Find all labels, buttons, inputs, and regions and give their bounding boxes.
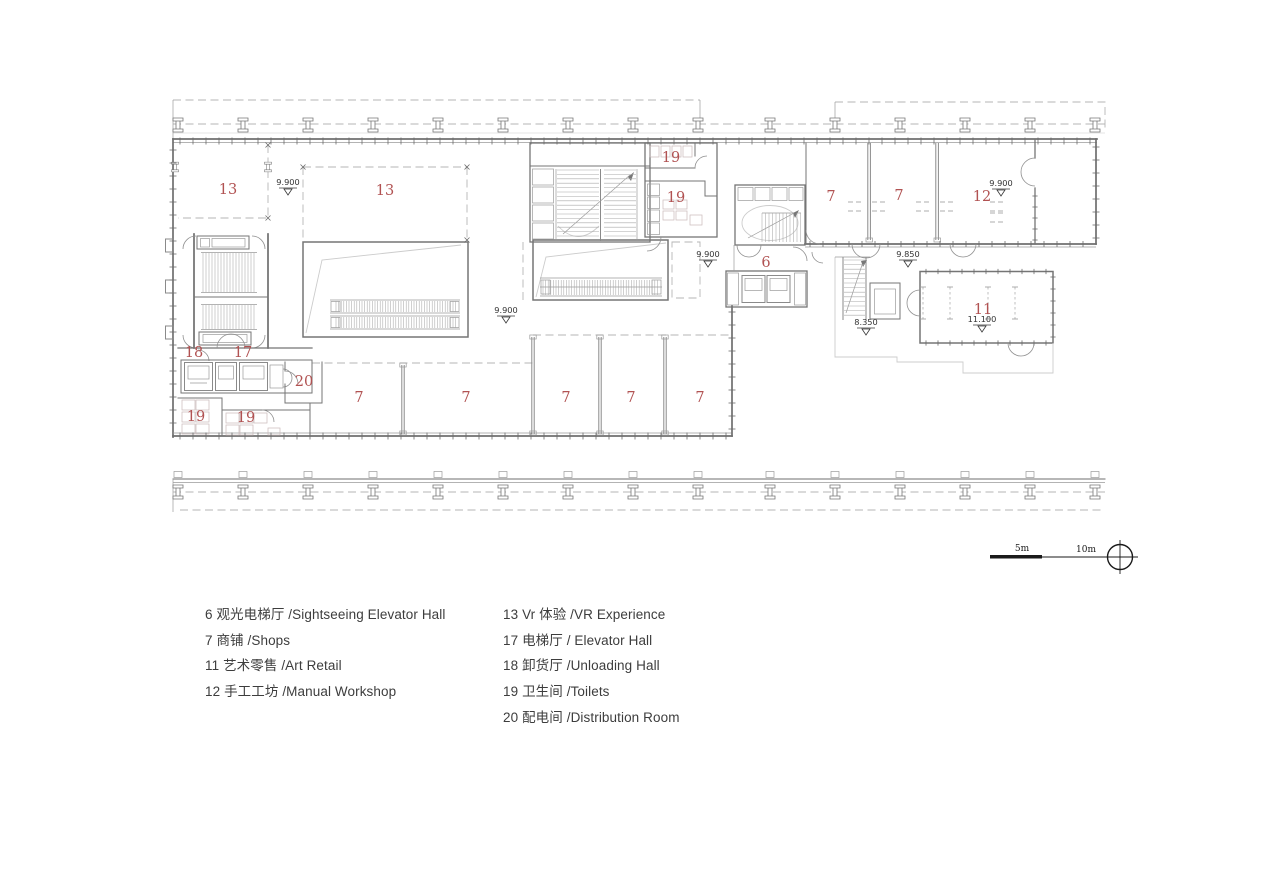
legend-item: 19 卫生间 /Toilets bbox=[503, 677, 680, 703]
room-label-6: 6 bbox=[761, 255, 770, 271]
art-retail-wing bbox=[835, 257, 1053, 373]
room-label-13: 13 bbox=[376, 183, 394, 199]
elevation-marker-label: 9.900 bbox=[494, 305, 517, 315]
room-label-7: 7 bbox=[626, 390, 635, 406]
scale-bar-5m-segment bbox=[990, 555, 1042, 559]
scale-label-5m: 5m bbox=[1015, 544, 1030, 554]
legend-item: 20 配电间 /Distribution Room bbox=[503, 703, 680, 729]
room-label-19: 19 bbox=[237, 410, 255, 426]
elevation-marker-icon bbox=[978, 326, 986, 332]
legend-item: 13 Vr 体验 /VR Experience bbox=[503, 600, 680, 626]
elevation-marker-icon bbox=[704, 261, 712, 267]
elevation-marker-label: 9.900 bbox=[989, 178, 1012, 188]
room-label-7: 7 bbox=[894, 188, 903, 204]
room-label-19: 19 bbox=[662, 150, 680, 166]
legend-item: 12 手工工坊 /Manual Workshop bbox=[205, 677, 446, 703]
room-label-20: 20 bbox=[295, 374, 313, 390]
scale-label-10m: 10m bbox=[1076, 545, 1096, 555]
legend-column-1: 6 观光电梯厅 /Sightseeing Elevator Hall 7 商铺 … bbox=[205, 600, 446, 703]
elevation-marker-label: 9.850 bbox=[896, 249, 919, 259]
oval-stair-room bbox=[735, 185, 805, 245]
floor-plan-drawing: 1313191977126111817207777719199.9009.900… bbox=[0, 0, 1280, 870]
room-label-13: 13 bbox=[219, 182, 237, 198]
legend-item: 6 观光电梯厅 /Sightseeing Elevator Hall bbox=[205, 600, 446, 626]
room-label-7: 7 bbox=[354, 390, 363, 406]
room-label-7: 7 bbox=[826, 189, 835, 205]
room-label-7: 7 bbox=[695, 390, 704, 406]
elevation-marker-label: 8.350 bbox=[854, 317, 877, 327]
elevation-marker-icon bbox=[997, 190, 1005, 196]
elevation-marker-icon bbox=[862, 329, 870, 335]
elevation-marker-icon bbox=[502, 317, 510, 323]
room-label-7: 7 bbox=[561, 390, 570, 406]
legend-item: 18 卸货厅 /Unloading Hall bbox=[503, 651, 680, 677]
legend-item: 7 商铺 /Shops bbox=[205, 626, 446, 652]
legend-item: 17 电梯厅 / Elevator Hall bbox=[503, 626, 680, 652]
floor-plan-canvas: 1313191977126111817207777719199.9009.900… bbox=[0, 0, 1280, 870]
room-label-19: 19 bbox=[187, 409, 205, 425]
generated-plan-details: 1313191977126111817207777719199.9009.900… bbox=[170, 118, 1101, 499]
room-label-19: 19 bbox=[667, 190, 685, 206]
room-label-17: 17 bbox=[234, 345, 252, 361]
elevation-marker-icon bbox=[284, 189, 292, 195]
room-label-18: 18 bbox=[185, 345, 203, 361]
legend-item: 11 艺术零售 /Art Retail bbox=[205, 651, 446, 677]
room-label-7: 7 bbox=[461, 390, 470, 406]
elevation-marker-label: 9.900 bbox=[696, 249, 719, 259]
scale-bar: 5m 10m bbox=[990, 544, 1138, 559]
room-label-12: 12 bbox=[973, 189, 991, 205]
left-stair-block bbox=[183, 234, 268, 348]
elevation-marker-label: 11.100 bbox=[968, 314, 997, 324]
dashed-zones bbox=[178, 145, 732, 363]
elevation-marker-label: 9.900 bbox=[276, 177, 299, 187]
elevation-marker-icon bbox=[904, 261, 912, 267]
legend-column-2: 13 Vr 体验 /VR Experience 17 电梯厅 / Elevato… bbox=[503, 600, 680, 728]
